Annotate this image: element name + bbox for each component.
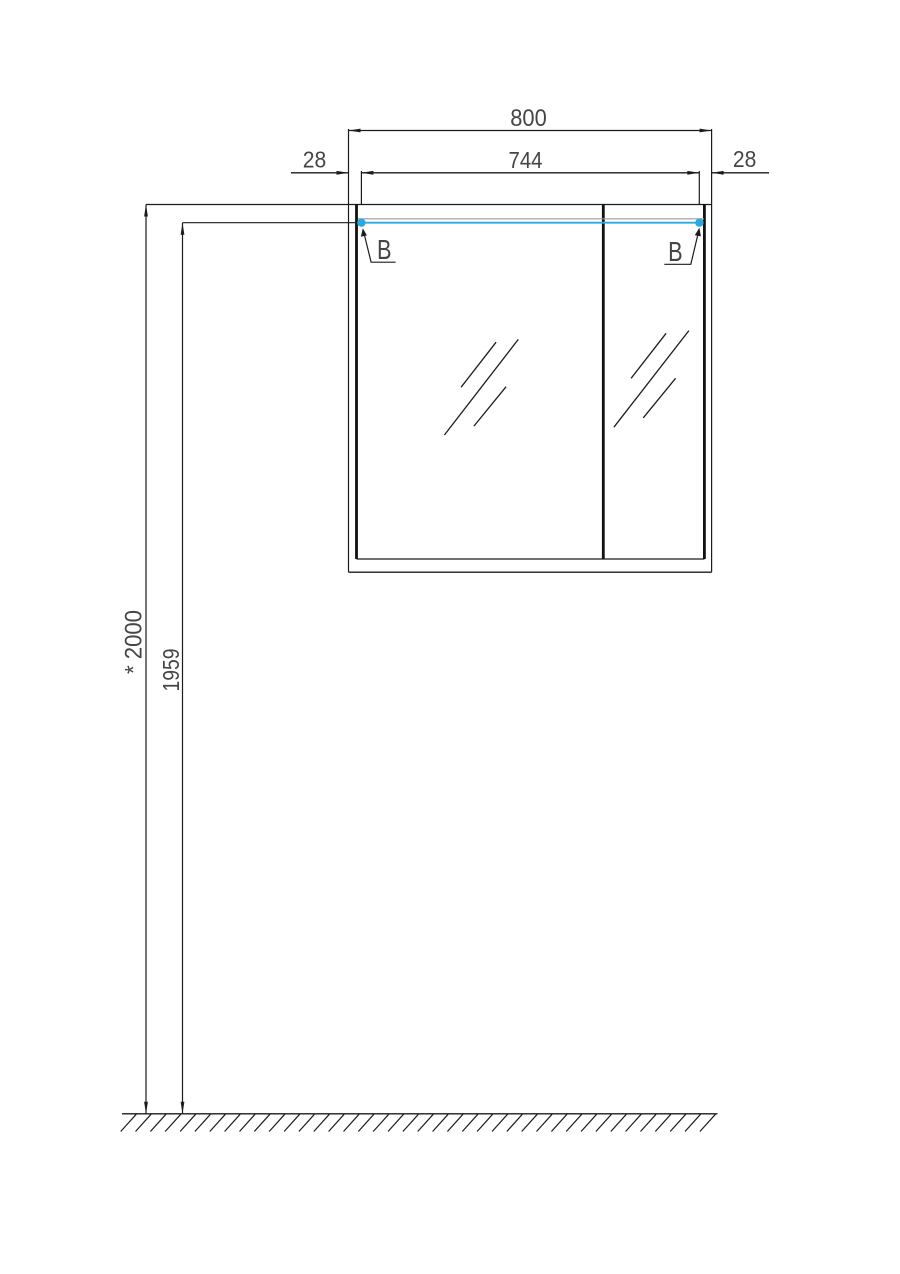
svg-text:28: 28 xyxy=(733,146,757,172)
svg-text:B: B xyxy=(668,236,683,267)
svg-text:800: 800 xyxy=(510,105,547,132)
svg-text:B: B xyxy=(377,234,392,265)
svg-text:1959: 1959 xyxy=(158,649,184,692)
svg-text:28: 28 xyxy=(303,147,327,173)
svg-text:744: 744 xyxy=(509,147,543,173)
svg-text:* 2000: * 2000 xyxy=(121,610,148,674)
